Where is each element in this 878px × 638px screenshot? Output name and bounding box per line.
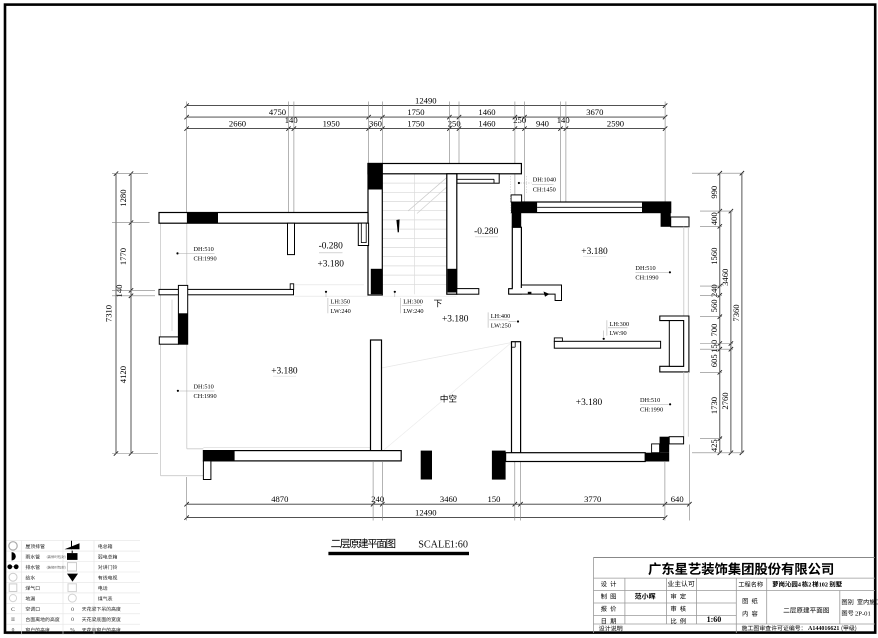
- svg-text:+3.180: +3.180: [271, 367, 298, 377]
- svg-text:2: 2: [808, 582, 811, 589]
- svg-text:940: 940: [536, 119, 549, 129]
- svg-text:+3.180: +3.180: [442, 315, 469, 325]
- svg-text:3670: 3670: [586, 107, 603, 117]
- svg-text:0: 0: [71, 617, 74, 623]
- svg-text:1280: 1280: [118, 190, 128, 207]
- svg-text:LW:240: LW:240: [331, 308, 351, 315]
- svg-text:+3.180: +3.180: [318, 260, 345, 270]
- svg-text:4870: 4870: [271, 494, 288, 504]
- svg-text:2660: 2660: [229, 119, 246, 129]
- svg-text:400: 400: [709, 212, 719, 225]
- svg-text:CH:1990: CH:1990: [194, 256, 217, 263]
- svg-text:LH:400: LH:400: [491, 313, 511, 320]
- svg-text:CH:1990: CH:1990: [635, 275, 658, 282]
- svg-text:LH:300: LH:300: [610, 321, 630, 328]
- svg-text:640: 640: [671, 494, 684, 504]
- svg-text:560: 560: [709, 299, 719, 312]
- svg-text:CH:1990: CH:1990: [640, 407, 663, 414]
- svg-text:LW:250: LW:250: [491, 322, 511, 329]
- svg-text:DH:510: DH:510: [640, 397, 660, 404]
- svg-text:0: 0: [12, 628, 15, 634]
- svg-text:3460: 3460: [720, 269, 730, 286]
- svg-text:%: %: [70, 628, 75, 634]
- svg-text:1950: 1950: [323, 119, 340, 129]
- svg-text:360: 360: [369, 119, 382, 129]
- svg-text:+3.180: +3.180: [581, 247, 608, 257]
- svg-text:4750: 4750: [269, 107, 286, 117]
- svg-text:990: 990: [709, 186, 719, 199]
- svg-text:425: 425: [709, 439, 719, 452]
- svg-text:LW:240: LW:240: [403, 308, 423, 315]
- svg-text:2P-01: 2P-01: [855, 610, 871, 617]
- svg-text:C: C: [11, 607, 15, 613]
- svg-text:DH:510: DH:510: [194, 246, 214, 253]
- svg-text:DH:1040: DH:1040: [533, 177, 556, 184]
- svg-text:2760: 2760: [720, 392, 730, 409]
- svg-text:4: 4: [798, 582, 801, 589]
- svg-text:A144016621: A144016621: [808, 626, 839, 632]
- svg-text:II: II: [11, 617, 15, 623]
- svg-text:12490: 12490: [415, 508, 436, 518]
- svg-text:DH:510: DH:510: [635, 265, 655, 272]
- svg-text:LH:350: LH:350: [331, 299, 351, 306]
- svg-text:-0.280: -0.280: [319, 241, 344, 251]
- svg-text:1460: 1460: [478, 119, 495, 129]
- svg-text:140: 140: [285, 115, 298, 125]
- svg-text:LW:90: LW:90: [610, 330, 627, 337]
- svg-text:4120: 4120: [118, 366, 128, 383]
- svg-text:DH:510: DH:510: [194, 383, 214, 390]
- svg-text:12490: 12490: [415, 96, 436, 106]
- svg-text:1750: 1750: [407, 119, 424, 129]
- svg-text:LH:300: LH:300: [403, 299, 423, 306]
- svg-text:1:60: 1:60: [450, 539, 468, 550]
- svg-text:7310: 7310: [104, 305, 114, 322]
- svg-text:2590: 2590: [607, 119, 624, 129]
- svg-text:140: 140: [557, 115, 570, 125]
- svg-text:+3.180: +3.180: [576, 398, 603, 408]
- svg-text:1770: 1770: [118, 248, 128, 265]
- svg-text:1560: 1560: [709, 248, 719, 265]
- svg-text:SCALE: SCALE: [418, 539, 450, 550]
- svg-text:0: 0: [71, 607, 74, 613]
- svg-text:150: 150: [709, 340, 719, 353]
- svg-text:7360: 7360: [731, 304, 741, 321]
- svg-text:1460: 1460: [478, 107, 495, 117]
- svg-text:CH:1990: CH:1990: [194, 393, 217, 400]
- svg-text:150: 150: [488, 494, 501, 504]
- svg-text:CH:1450: CH:1450: [533, 187, 556, 194]
- svg-text:3460: 3460: [440, 494, 457, 504]
- svg-text:605: 605: [709, 354, 719, 367]
- svg-text:1750: 1750: [407, 107, 424, 117]
- svg-text:3770: 3770: [584, 494, 601, 504]
- svg-text:700: 700: [709, 324, 719, 337]
- svg-text:1:60: 1:60: [707, 615, 722, 624]
- svg-text:102: 102: [819, 582, 828, 589]
- svg-text:1730: 1730: [709, 397, 719, 414]
- svg-text:-0.280: -0.280: [474, 227, 499, 237]
